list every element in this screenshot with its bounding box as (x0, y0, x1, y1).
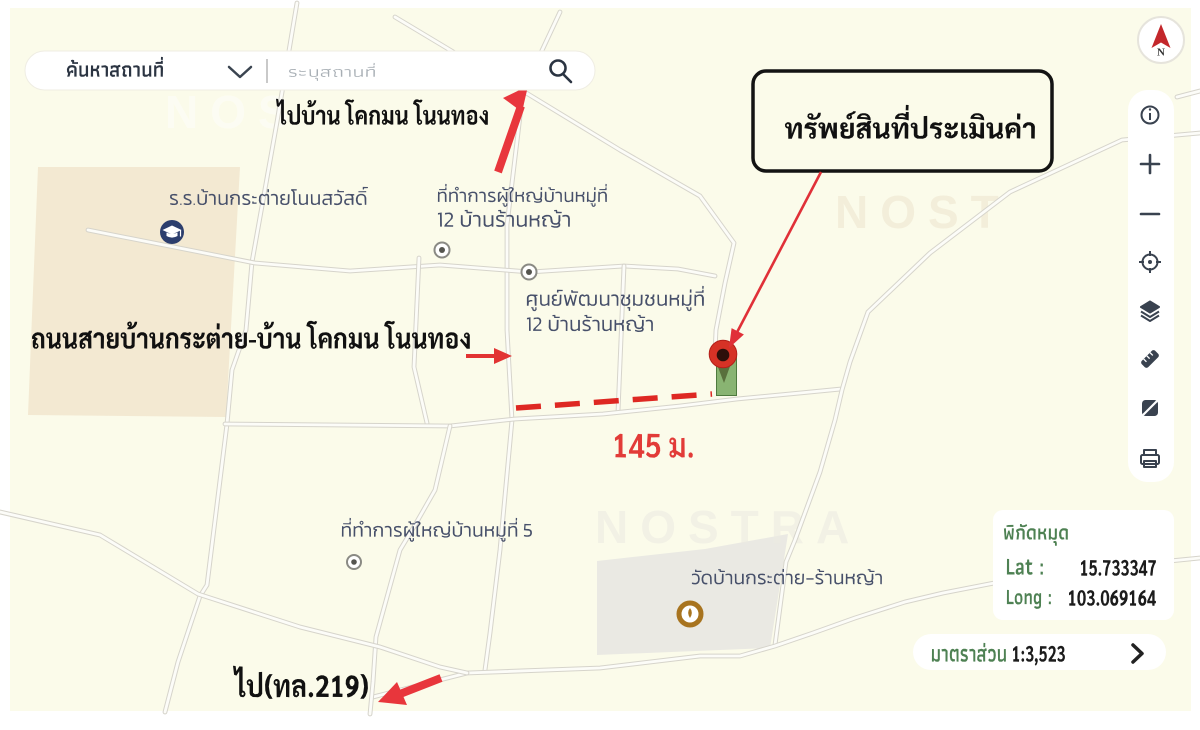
svg-text:NOSTRA: NOSTRA (595, 501, 861, 553)
svg-text:N: N (1157, 47, 1165, 59)
